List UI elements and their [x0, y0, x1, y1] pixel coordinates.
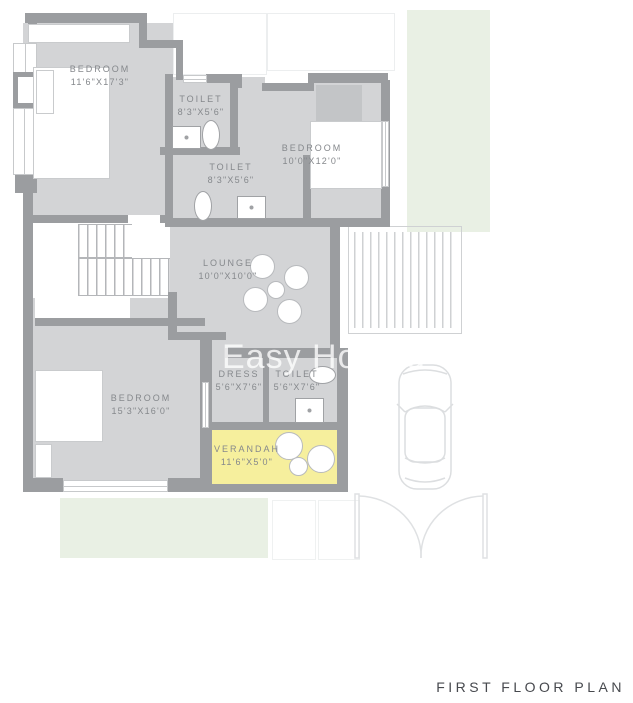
- wall-segment: [205, 422, 348, 430]
- wardrobe: [28, 24, 130, 43]
- floor-plan: BEDROOM 11'6"X17'3" TOILET 8'3"X5'6" TOI…: [0, 0, 633, 703]
- room-name: BEDROOM: [86, 392, 196, 405]
- wall-segment: [262, 83, 314, 91]
- car-icon: [392, 360, 458, 496]
- room-dims: 10'0"X10'0": [173, 270, 283, 283]
- room-label-bedroom-2: BEDROOM 10'0"X12'0": [257, 142, 367, 168]
- wall-segment: [35, 318, 205, 326]
- open-terrace-outline: [173, 13, 267, 75]
- garden-right: [407, 10, 490, 232]
- room-name: VERANDAH: [192, 443, 302, 456]
- side-table: [35, 444, 52, 478]
- wall-segment: [27, 215, 128, 223]
- wall-segment: [165, 150, 173, 224]
- wall-segment: [176, 40, 183, 80]
- lounge-chair: [243, 287, 268, 312]
- wall-segment: [330, 222, 340, 348]
- wall-segment: [308, 73, 388, 83]
- wall-segment: [160, 215, 173, 223]
- room-label-bedroom-1: BEDROOM 11'6"X17'3": [45, 63, 155, 89]
- wall-segment: [205, 484, 348, 492]
- room-label-lounge: LOUNGE 10'0"X10'0": [173, 257, 283, 283]
- room-name: BEDROOM: [45, 63, 155, 76]
- gate-icon: [350, 490, 492, 568]
- lounge-table: [267, 281, 285, 299]
- wall-segment: [168, 292, 177, 336]
- wash-basin: [172, 126, 201, 149]
- room-name: TOILET: [151, 93, 251, 106]
- wash-basin: [237, 196, 266, 219]
- pergola-deck: [348, 226, 462, 334]
- toilet-wc: [194, 191, 212, 221]
- room-dims: 8'3"X5'6": [151, 106, 251, 119]
- toilet-wc: [202, 120, 220, 150]
- room-name: BEDROOM: [257, 142, 367, 155]
- lounge-chair: [277, 299, 302, 324]
- watermark: Easy Hops d: [222, 338, 426, 377]
- room-dims: 10'0"X12'0": [257, 155, 367, 168]
- corridor: [35, 298, 130, 318]
- room-dims: 8'3"X5'6": [181, 174, 281, 187]
- room-label-bedroom-3: BEDROOM 15'3"X16'0": [86, 392, 196, 418]
- verandah-chair: [307, 445, 335, 473]
- pavement-tile: [272, 500, 316, 560]
- wardrobe: [316, 85, 362, 123]
- window: [63, 480, 168, 492]
- stair-flight-lower: [78, 258, 170, 296]
- wall-segment: [23, 478, 63, 492]
- wash-basin: [295, 398, 324, 423]
- room-dims: 11'6"X5'0": [192, 456, 302, 469]
- room-label-verandah: VERANDAH 11'6"X5'0": [192, 443, 302, 469]
- room-dims: 5'6"X7'6": [256, 381, 338, 394]
- wall-segment: [168, 332, 226, 340]
- lounge-chair: [284, 265, 309, 290]
- room-dims: 15'3"X16'0": [86, 405, 196, 418]
- window: [13, 108, 35, 175]
- room-label-toilet-1: TOILET 8'3"X5'6": [151, 93, 251, 119]
- window: [183, 75, 207, 83]
- wall-segment: [23, 193, 33, 485]
- open-terrace-outline: [267, 13, 395, 71]
- room-dims: 11'6"X17'3": [45, 76, 155, 89]
- stair-flight-upper: [78, 224, 132, 258]
- page-title: FIRST FLOOR PLAN: [436, 679, 625, 695]
- room-name: LOUNGE: [173, 257, 283, 270]
- garden-bottom: [60, 498, 268, 558]
- wall-segment: [25, 13, 147, 23]
- wall-segment: [168, 478, 212, 492]
- window: [382, 121, 389, 187]
